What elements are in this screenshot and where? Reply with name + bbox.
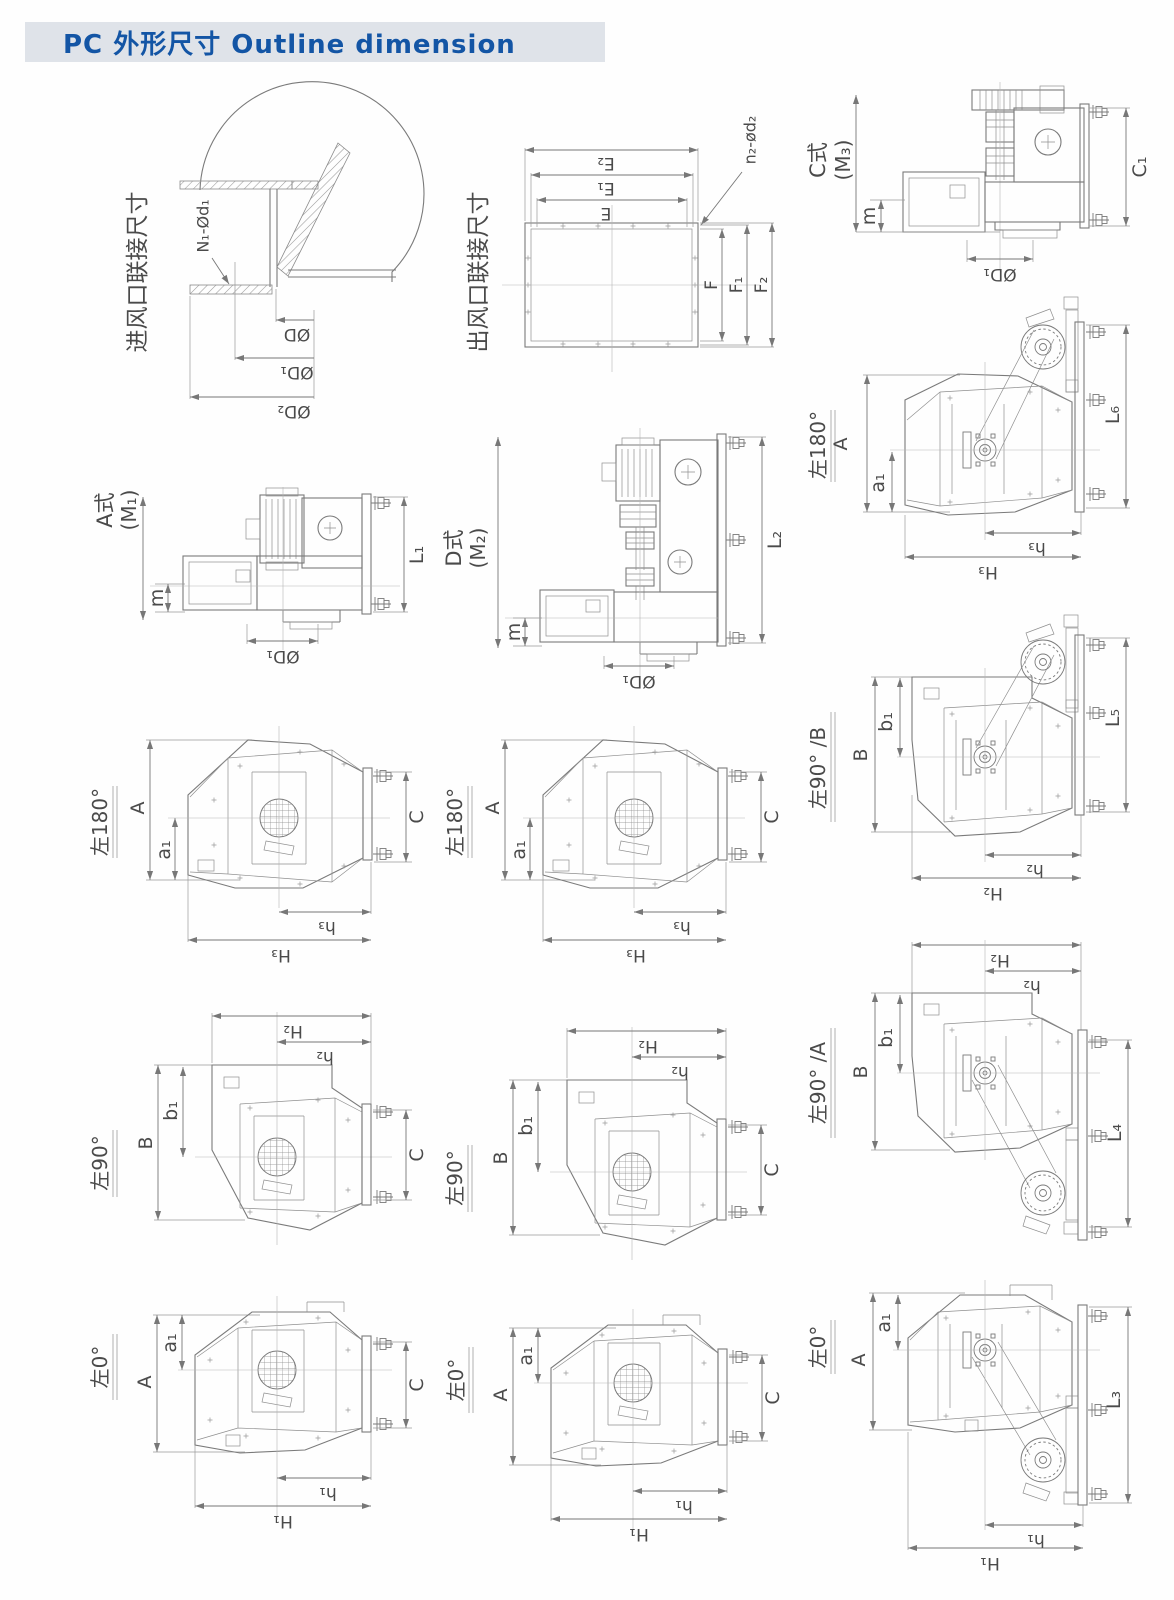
dim-label-b: B — [850, 748, 872, 761]
dim-label-H1: H₁ — [980, 1553, 1000, 1573]
dim-label-h1: h₁ — [675, 1496, 693, 1516]
dim-label-a1: a₁ — [153, 840, 175, 859]
drawing-l90-mid: 左90° B b₁ C H₂ h₂ — [443, 1027, 783, 1260]
dim-label-h2: h₂ — [1026, 860, 1044, 880]
dim-label-h3: h₃ — [673, 917, 691, 937]
drawings-canvas: 进风口联接尺寸 N₁-Ød₁ ØD ØD₁ ØD₂ 出风口联接尺寸 E₂ E₁ … — [0, 0, 1174, 1600]
dim-label-H2: H₂ — [638, 1036, 658, 1056]
drawing-type-c: C式 (M₃) C₁ m ØD₁ — [806, 82, 1151, 284]
dim-label-d1: ØD₁ — [983, 264, 1016, 284]
dim-label-a: A — [482, 802, 504, 815]
drawing-type-d: D式 (M₂) L₂ m ØD₁ — [442, 428, 786, 691]
dim-label-a1: a₁ — [515, 1346, 537, 1365]
dim-label-c: C — [761, 810, 783, 823]
dim-label-h1: h₁ — [319, 1483, 337, 1503]
drawing-type-a: A式 (M₁) L₁ m ØD₁ — [93, 487, 428, 666]
l180-title: 左180° — [806, 411, 830, 479]
dim-label-d1: ØD₁ — [622, 671, 655, 691]
dim-label-l2: L₂ — [764, 531, 786, 549]
dim-label-l4: L₄ — [1104, 1124, 1126, 1143]
l0-title: 左0° — [806, 1326, 830, 1369]
l180-title: 左180° — [443, 788, 467, 856]
dim-label-a: A — [127, 802, 149, 815]
dim-label-h2: h₂ — [316, 1047, 334, 1067]
dim-label-b: B — [850, 1065, 872, 1078]
inlet-title: 进风口联接尺寸 — [125, 192, 151, 353]
dim-label-d2: ØD₂ — [277, 401, 310, 421]
type-a-title: A式 — [93, 492, 117, 527]
dim-label-l5: L₅ — [1102, 709, 1124, 727]
dim-label-m: m — [146, 589, 168, 608]
dim-label-h1: h₁ — [1027, 1530, 1045, 1550]
dim-label-H2: H₂ — [983, 883, 1003, 903]
dim-label-m: m — [858, 207, 880, 226]
l0-title: 左0° — [88, 1346, 112, 1389]
dim-label-a: A — [134, 1376, 156, 1389]
dim-label-H2: H₂ — [990, 950, 1010, 970]
dim-label-a: A — [490, 1389, 512, 1402]
drawing-l0-left: 左0° A a₁ C h₁ H₁ — [88, 1296, 428, 1531]
drawing-inlet-flange: 进风口联接尺寸 N₁-Ød₁ ØD ØD₁ ØD₂ — [125, 82, 424, 421]
drawing-outlet-flange: 出风口联接尺寸 E₂ E₁ E n₂-ød₂ F F₁ F₂ — [466, 116, 774, 372]
dim-label-b1: b₁ — [875, 712, 897, 732]
drawing-l90b-right: 左90° /B B b₁ L₅ h₂ H₂ — [806, 615, 1130, 903]
dim-label-f: F — [702, 280, 722, 290]
dim-label-e1: E₁ — [597, 178, 615, 198]
dim-label-b1: b₁ — [515, 1116, 537, 1136]
dim-label-d: ØD — [284, 324, 310, 344]
dim-label-c1: C₁ — [1129, 157, 1151, 178]
drawing-l90a-right: 左90° /A B b₁ L₄ H₂ h₂ — [806, 940, 1132, 1240]
l90a-title: 左90° /A — [806, 1042, 830, 1125]
dim-label-l3: L₃ — [1103, 1391, 1125, 1409]
l0-title: 左0° — [444, 1359, 468, 1402]
dim-label-l6: L₆ — [1102, 406, 1124, 424]
dim-label-l1: L₁ — [406, 546, 428, 564]
dim-label-e2: E₂ — [597, 153, 615, 173]
drawing-l180-left: 左180° A a₁ C h₃ H₃ — [88, 726, 428, 965]
type-c-subtitle: (M₃) — [831, 140, 855, 181]
l90-title: 左90° — [88, 1135, 112, 1190]
dim-label-f2: F₂ — [752, 277, 772, 294]
outlet-title: 出风口联接尺寸 — [466, 192, 492, 353]
drawing-l0-mid: 左0° A a₁ C h₁ H₁ — [444, 1309, 784, 1544]
dim-label-b1: b₁ — [160, 1101, 182, 1121]
drawing-l90-left: 左90° B b₁ C H₂ h₂ — [88, 1012, 428, 1245]
catalog-page: { "header": { "title": "PC 外形尺寸 Outline … — [0, 0, 1174, 1600]
type-d-subtitle: (M₂) — [466, 528, 490, 569]
dim-label-a: A — [830, 438, 852, 451]
type-a-subtitle: (M₁) — [117, 490, 141, 531]
l90b-title: 左90° /B — [806, 727, 830, 809]
dim-label-b1: b₁ — [875, 1028, 897, 1048]
dim-label-h2: h₂ — [1023, 976, 1041, 996]
dim-label-a1: a₁ — [159, 1333, 181, 1352]
dim-label-c: C — [406, 1148, 428, 1161]
dim-label-c: C — [761, 1163, 783, 1176]
drawing-l180-mid: 左180° A a₁ C h₃ H₃ — [443, 726, 783, 965]
dim-label-f1: F₁ — [727, 277, 747, 294]
dim-label-m: m — [503, 623, 525, 642]
dim-label-h2: h₂ — [671, 1062, 689, 1082]
dim-label-b: B — [490, 1151, 512, 1164]
dim-label-b: B — [135, 1136, 157, 1149]
l90-title: 左90° — [443, 1150, 467, 1205]
dim-label-e: E — [601, 203, 612, 223]
type-d-title: D式 — [442, 529, 466, 566]
dim-label-a1: a₁ — [873, 1313, 895, 1332]
dim-label-d1: ØD₁ — [280, 362, 313, 382]
dim-label-c: C — [406, 810, 428, 823]
dim-label-a: A — [848, 1354, 870, 1367]
dim-label-H3: H₃ — [978, 562, 998, 582]
l180-title: 左180° — [88, 788, 112, 856]
dim-label-d1: ØD₁ — [266, 646, 299, 666]
dim-label-c: C — [762, 1391, 784, 1404]
drawing-l0-right: 左0° A a₁ L₃ h₁ H₁ — [806, 1280, 1132, 1573]
dim-label-h3: h₃ — [1028, 538, 1046, 558]
dim-label-n1d1: N₁-Ød₁ — [194, 199, 213, 252]
dim-label-H1: H₁ — [273, 1511, 293, 1531]
type-c-title: C式 — [806, 142, 830, 178]
dim-label-H1: H₁ — [629, 1524, 649, 1544]
drawing-l180-right: 左180° A a₁ L₆ h₃ H₃ — [806, 297, 1130, 582]
dim-label-a1: a₁ — [867, 473, 889, 492]
dim-label-H3: H₃ — [271, 945, 291, 965]
dim-label-n2d2: n₂-ød₂ — [741, 116, 760, 165]
dim-label-H3: H₃ — [626, 945, 646, 965]
dim-label-c: C — [406, 1378, 428, 1391]
dim-label-a1: a₁ — [508, 840, 530, 859]
dim-label-H2: H₂ — [283, 1021, 303, 1041]
dim-label-h3: h₃ — [318, 917, 336, 937]
